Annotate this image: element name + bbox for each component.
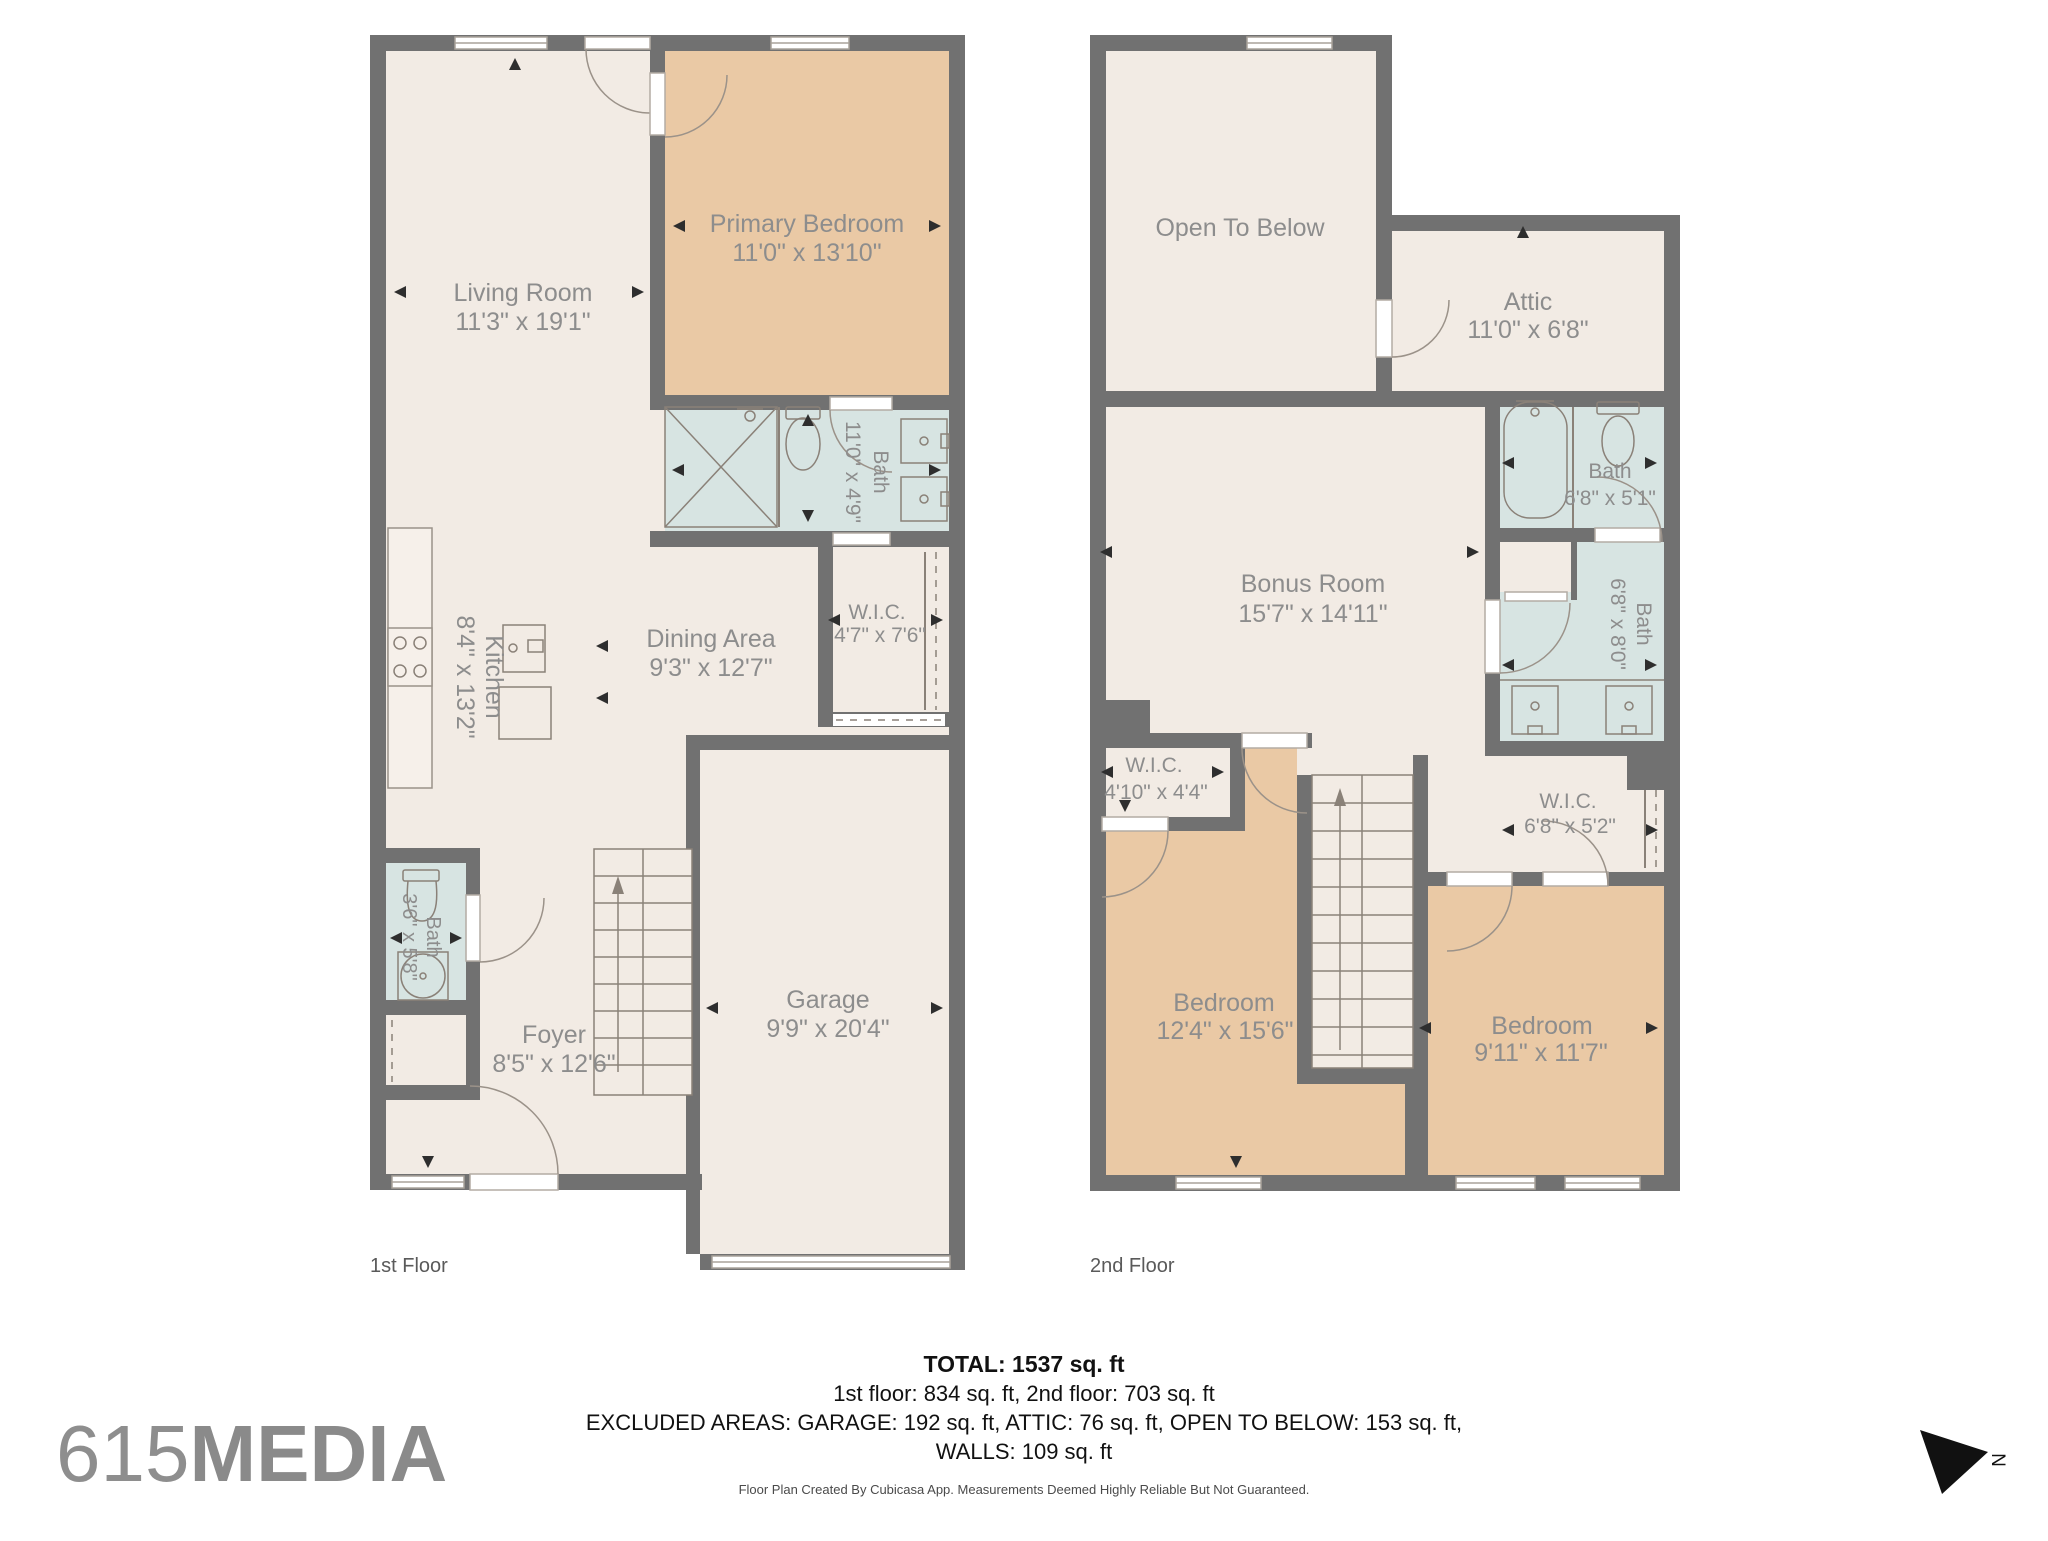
room-dims: 4'7" x 7'6" (834, 624, 926, 647)
bedroom1-area (1245, 748, 1297, 831)
room-label: Attic (1504, 288, 1553, 316)
floor1-plan: Living Room 11'3" x 19'1" Primary Bedroo… (370, 35, 965, 1277)
room-dims: 6'8" x 8'0" (1606, 578, 1629, 670)
room-dims: 8'4" x 13'2" (451, 615, 479, 738)
window (455, 37, 547, 49)
room-label: Dining Area (646, 625, 775, 653)
window (392, 1176, 464, 1188)
room-label: W.I.C. (1539, 790, 1596, 813)
room-label: Primary Bedroom (710, 210, 905, 238)
room-dims: 15'7" x 14'11" (1238, 600, 1387, 628)
room-label: Living Room (454, 279, 593, 307)
room-label: Bath (869, 450, 892, 493)
window (1247, 37, 1332, 49)
room-dims: 11'3" x 19'1" (455, 308, 590, 336)
total-area-text: TOTAL: 1537 sq. ft (0, 1350, 2048, 1379)
garage-door (712, 1256, 950, 1268)
closet-door (1505, 592, 1567, 601)
cased-opening (833, 714, 945, 726)
room-dims: 6'8" x 5'1" (1564, 487, 1656, 510)
room-label: Bonus Room (1241, 570, 1386, 598)
room-dims: 11'0" x 4'9" (841, 421, 864, 523)
room-dims: 11'0" x 13'10" (732, 239, 881, 267)
room-label: Bedroom (1173, 989, 1274, 1017)
615media-logo: 615MEDIA (56, 1408, 447, 1500)
window (1176, 1177, 1261, 1189)
floor2-plan: Open To Below Attic 11'0" x 6'8" Bonus R… (1090, 35, 1680, 1277)
room-label: W.I.C. (848, 601, 905, 624)
room-dims: 9'11" x 11'7" (1474, 1039, 1607, 1067)
stove-fixture (388, 628, 432, 686)
room-dims: 6'8" x 5'2" (1524, 815, 1616, 838)
wic-pocket-door (833, 533, 890, 545)
room-label: W.I.C. (1125, 754, 1182, 777)
stairs (1312, 775, 1413, 1068)
logo-prefix: 615 (56, 1409, 189, 1498)
floorplan-canvas: Living Room 11'3" x 19'1" Primary Bedroo… (0, 0, 2048, 1536)
room-label: Bedroom (1491, 1012, 1592, 1040)
room-label: Bath (1632, 602, 1655, 645)
room-label: Open To Below (1155, 214, 1325, 242)
room-label: Bath (1588, 460, 1631, 483)
bedroom1-area (1297, 1084, 1405, 1175)
room-dims: 9'3" x 12'7" (649, 654, 772, 682)
floor2-caption: 2nd Floor (1090, 1255, 1175, 1277)
room-label: Kitchen (480, 635, 508, 718)
linen-closet-area (1500, 538, 1571, 592)
window (1456, 1177, 1535, 1189)
room-label: Bath (422, 916, 444, 957)
room-label: Garage (786, 986, 869, 1014)
room-dims: 8'5" x 12'6" (492, 1050, 615, 1078)
floor1-caption: 1st Floor (370, 1255, 448, 1277)
floor-areas-text: 1st floor: 834 sq. ft, 2nd floor: 703 sq… (0, 1379, 2048, 1408)
room-dims: 11'0" x 6'8" (1467, 316, 1588, 344)
window (771, 37, 849, 49)
window (1565, 1177, 1640, 1189)
room-dims: 12'4" x 15'6" (1156, 1017, 1293, 1045)
room-dims: 9'9" x 20'4" (766, 1015, 889, 1043)
room-label: Foyer (522, 1021, 586, 1049)
logo-suffix: MEDIA (189, 1409, 447, 1498)
